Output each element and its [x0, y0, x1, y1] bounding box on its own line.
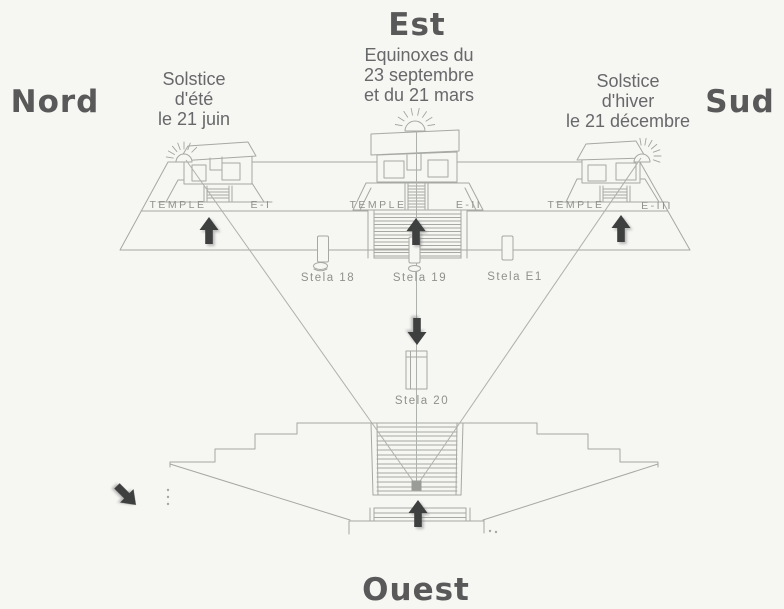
- sunrise-icon-equinox: [395, 108, 434, 131]
- compass-south-label: Sud: [705, 84, 775, 120]
- observation-point-marker: [412, 481, 422, 491]
- stela-e1-label: Stela E1: [487, 271, 542, 283]
- temple-e2-code: E-II: [456, 199, 482, 211]
- caption-east-line3: et du 21 mars: [364, 85, 474, 105]
- caption-south-line3: le 21 décembre: [566, 111, 690, 131]
- temple-e1-label: TEMPLE: [149, 199, 206, 211]
- temple-e2: [353, 108, 483, 210]
- stela-19-label: Stela 19: [393, 272, 447, 284]
- compass-west-label: Ouest: [362, 572, 470, 608]
- arrow-up-temple-e1-icon: [200, 217, 219, 244]
- direction-arrows: [110, 215, 630, 527]
- temple-e2-label: TEMPLE: [349, 199, 406, 211]
- temple-e3: [556, 138, 668, 202]
- temple-e3-code: E-III: [641, 200, 673, 212]
- caption-south-line1: Solstice: [596, 71, 659, 91]
- compass-east-label: Est: [388, 7, 445, 43]
- caption-north-line1: Solstice: [162, 69, 225, 89]
- compass-north-label: Nord: [11, 84, 100, 120]
- stela-18-label: Stela 18: [301, 272, 355, 284]
- caption-north-line3: le 21 juin: [158, 109, 230, 129]
- caption-south-line2: d'hiver: [602, 91, 654, 111]
- temple-e1-code: E-I: [251, 199, 272, 211]
- arrow-southeast-icon: [110, 479, 143, 512]
- caption-north-line2: d'été: [175, 89, 213, 109]
- caption-east-line2: 23 septembre: [364, 65, 474, 85]
- stela-18-altar: [314, 263, 328, 270]
- stela-18: [318, 236, 329, 262]
- temple-e1: [158, 142, 272, 202]
- astronomical-alignment-diagram: Est Equinoxes du 23 septembre et du 21 m…: [0, 0, 784, 609]
- stelae-group: [314, 236, 514, 389]
- arrow-down-stela20-icon: [408, 318, 427, 345]
- pyramid-evii: [167, 423, 658, 534]
- stela-19-altar: [409, 266, 421, 272]
- caption-east-line1: Equinoxes du: [364, 45, 473, 65]
- stela-e1: [502, 236, 513, 260]
- stela-20-label: Stela 20: [395, 395, 449, 407]
- arrow-up-temple-e3-icon: [612, 215, 631, 242]
- temple-e3-label: TEMPLE: [547, 199, 604, 211]
